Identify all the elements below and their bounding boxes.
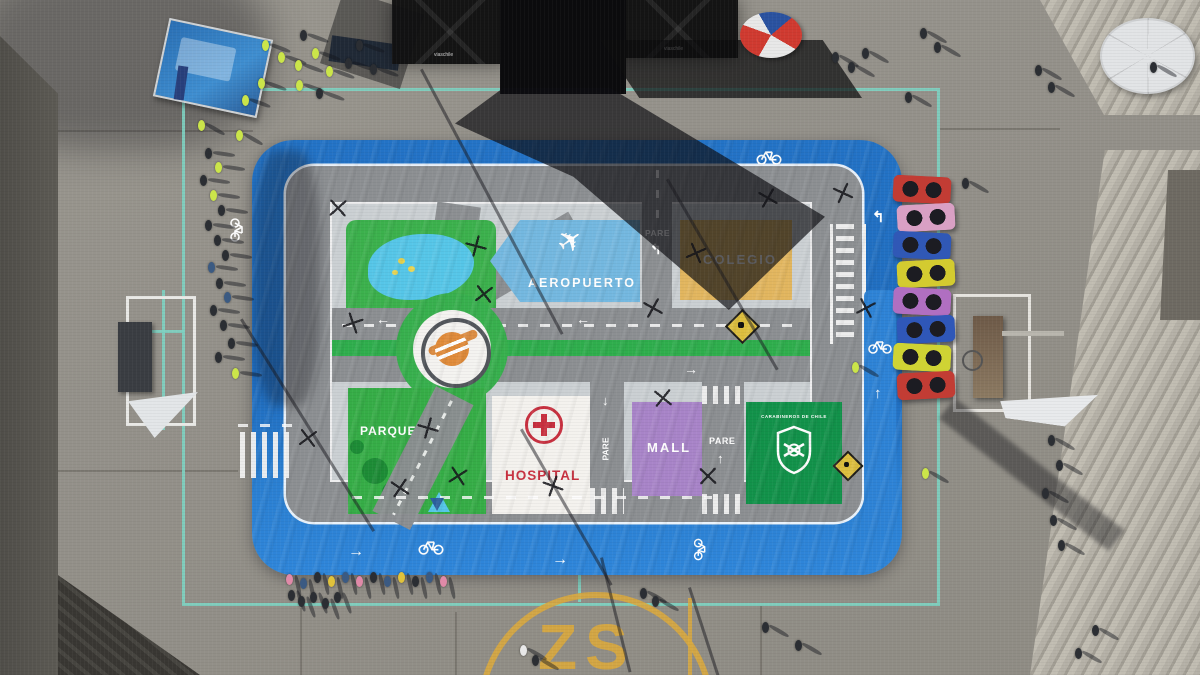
play-cube xyxy=(892,231,951,261)
person xyxy=(345,58,352,69)
lane-dashes xyxy=(238,424,300,427)
play-cube xyxy=(892,343,951,373)
person xyxy=(1035,65,1042,76)
person xyxy=(1058,540,1065,551)
person xyxy=(232,368,239,379)
person xyxy=(312,48,319,59)
person xyxy=(208,262,215,273)
person xyxy=(210,190,217,201)
person xyxy=(210,305,217,316)
umbrella-white xyxy=(1100,18,1195,94)
person xyxy=(296,80,303,91)
play-cube xyxy=(896,259,955,289)
person xyxy=(205,148,212,159)
person xyxy=(216,278,223,289)
person xyxy=(1048,435,1055,446)
person xyxy=(288,590,295,601)
person xyxy=(398,572,405,583)
play-cube xyxy=(892,175,951,205)
person xyxy=(412,576,419,587)
person xyxy=(198,120,205,131)
person xyxy=(215,352,222,363)
mini-sign-shadow xyxy=(700,468,717,485)
umbrella-striped xyxy=(740,12,802,58)
person xyxy=(334,592,341,603)
person xyxy=(370,64,377,75)
person xyxy=(236,130,243,141)
wall-left-dark xyxy=(0,36,58,675)
person xyxy=(356,576,363,587)
mini-sign-shadow xyxy=(475,285,493,303)
person xyxy=(224,292,231,303)
person xyxy=(242,95,249,106)
tent-brand-text: viaschile xyxy=(434,52,453,58)
person xyxy=(1050,515,1057,526)
aerial-photo-traffic-park: ZS ← ← → → xyxy=(0,0,1200,675)
slab-joint xyxy=(760,606,762,675)
play-cube xyxy=(896,315,955,345)
person xyxy=(328,576,335,587)
person xyxy=(314,572,321,583)
play-cube xyxy=(896,371,955,401)
person xyxy=(440,576,447,587)
person xyxy=(640,588,647,599)
person xyxy=(310,592,317,603)
play-cube xyxy=(896,203,955,233)
person xyxy=(342,572,349,583)
person xyxy=(832,52,839,63)
person xyxy=(228,338,235,349)
person xyxy=(962,178,969,189)
person xyxy=(214,235,221,246)
person xyxy=(762,622,769,633)
person xyxy=(920,28,927,39)
slab-joint xyxy=(455,612,457,675)
mini-sign-shadow xyxy=(330,200,347,217)
mini-sign-shadow xyxy=(391,479,410,498)
person xyxy=(1075,648,1082,659)
person xyxy=(322,598,329,609)
person xyxy=(384,576,391,587)
person xyxy=(1150,62,1157,73)
slab-joint xyxy=(300,608,302,675)
mini-sign-shadow xyxy=(299,429,317,447)
goal-arm xyxy=(1002,331,1064,336)
person xyxy=(848,62,855,73)
left-backboard xyxy=(118,322,152,392)
person xyxy=(218,205,225,216)
person xyxy=(1056,460,1063,471)
mini-sign-shadow xyxy=(449,467,468,486)
person xyxy=(1092,625,1099,636)
mini-sign-shadow xyxy=(654,389,672,407)
person xyxy=(262,40,269,51)
person xyxy=(922,468,929,479)
person xyxy=(370,572,377,583)
right-hoop-ring xyxy=(962,350,983,371)
person xyxy=(286,574,293,585)
person xyxy=(934,42,941,53)
person xyxy=(532,655,539,666)
person xyxy=(316,88,323,99)
slab-joint xyxy=(940,128,1060,130)
person xyxy=(215,162,222,173)
person xyxy=(295,60,302,71)
person xyxy=(1048,82,1055,93)
play-cube xyxy=(892,287,951,317)
person xyxy=(852,362,859,373)
crowd-shadow xyxy=(254,150,320,406)
person xyxy=(652,596,659,607)
person xyxy=(205,220,212,231)
person xyxy=(300,30,307,41)
person xyxy=(1042,488,1049,499)
person xyxy=(326,66,333,77)
person xyxy=(222,250,229,261)
person xyxy=(520,645,527,656)
person xyxy=(258,78,265,89)
person xyxy=(905,92,912,103)
person xyxy=(300,578,307,589)
court-line-yellow xyxy=(688,598,692,675)
person xyxy=(862,48,869,59)
person xyxy=(220,320,227,331)
person xyxy=(795,640,802,651)
crosswalk-border xyxy=(240,432,290,478)
person xyxy=(426,572,433,583)
person xyxy=(278,52,285,63)
person xyxy=(356,40,363,51)
person xyxy=(298,596,305,607)
tent-shadow xyxy=(600,40,862,98)
person xyxy=(200,175,207,186)
left-hoop-ring xyxy=(152,348,168,364)
